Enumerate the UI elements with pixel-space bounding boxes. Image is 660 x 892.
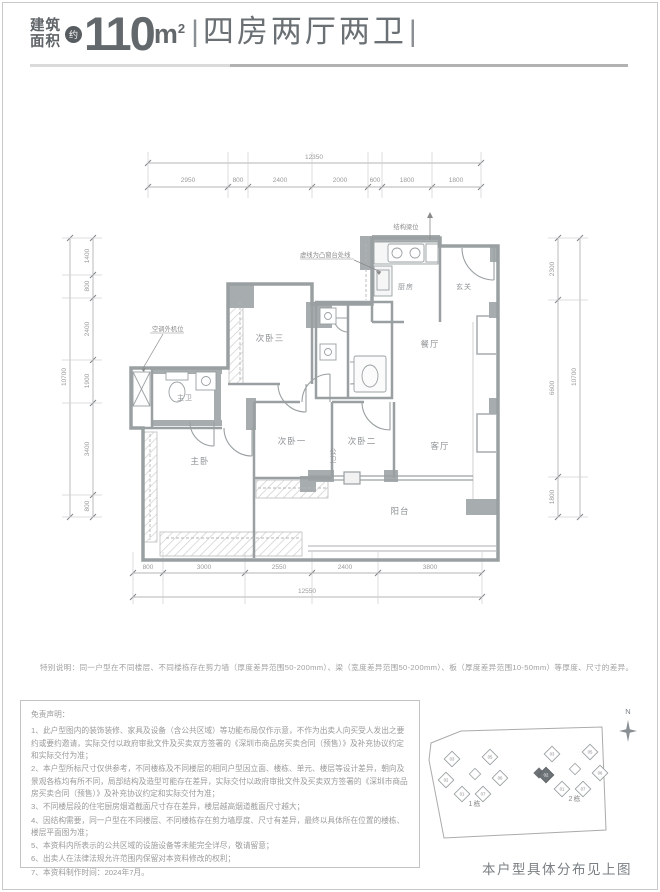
header: 建筑 面积 约 110 m2 | 四房两厅两卫 | bbox=[30, 12, 421, 56]
site-plan-caption: 本户型具体分布见上图 bbox=[467, 858, 647, 878]
pipe-left: | bbox=[191, 14, 199, 50]
dim-top-4: 600 bbox=[370, 177, 381, 184]
dim-left-5: 800 bbox=[84, 500, 91, 511]
layout-text: 四房两厅两卫 bbox=[203, 12, 407, 52]
room-kitchen: 厨房 bbox=[398, 282, 414, 291]
dim-left-1: 800 bbox=[84, 280, 91, 291]
dim-bottom-2: 2550 bbox=[272, 564, 287, 571]
header-divider-light bbox=[30, 64, 230, 67]
site-boundary bbox=[429, 727, 606, 838]
b1-unit-05: 05 bbox=[488, 755, 493, 760]
dim-bottom-0: 800 bbox=[143, 564, 154, 571]
b2-unit-03: 03 bbox=[550, 752, 555, 757]
b2-unit-02-highlighted: 02 bbox=[544, 773, 549, 778]
b1-unit-07: 07 bbox=[481, 792, 486, 797]
b1-unit-01: 01 bbox=[460, 792, 465, 797]
dim-left-2: 2400 bbox=[84, 321, 91, 336]
b2-unit-07: 07 bbox=[581, 787, 586, 792]
area-label-top: 建筑 bbox=[30, 18, 61, 34]
dim-top-2: 2400 bbox=[273, 177, 288, 184]
dim-left-3: 1900 bbox=[84, 373, 91, 388]
dim-top-3: 2000 bbox=[333, 177, 348, 184]
disclaimer-item: 7、本资料制作时间：2024年7月。 bbox=[31, 867, 409, 879]
b1-unit-03: 03 bbox=[450, 757, 455, 762]
corridor-zigzag bbox=[477, 316, 496, 452]
disclaimer-item: 2、本户型所标尺寸仅供参考，不同楼栋及不同楼层的相同户型因立面、楼栋、单元、楼层… bbox=[31, 763, 409, 800]
room-public-bath: 公卫 bbox=[327, 448, 337, 464]
dim-bottom-3: 2400 bbox=[338, 564, 353, 571]
approx-badge: 约 bbox=[65, 26, 82, 43]
room-foyer: 玄关 bbox=[456, 282, 472, 291]
room-living: 客厅 bbox=[430, 441, 449, 451]
room-balcony: 阳台 bbox=[390, 506, 409, 516]
north-star-icon bbox=[619, 720, 637, 742]
dim-top-6: 1800 bbox=[449, 177, 464, 184]
bay-window-label: 虚线为凸窗台处线 bbox=[300, 250, 351, 259]
room-master-bedroom: 主卧 bbox=[190, 456, 209, 466]
disclaimer-item: 6、出卖人在法律法规允许范围内保留对本资料修改的权利； bbox=[31, 853, 409, 865]
b1-unit-06: 06 bbox=[498, 776, 503, 781]
balcony-railing bbox=[308, 546, 496, 551]
special-note: 特别说明：同一户型在不同楼层、不同楼栋存在剪力墙（厚度差异范围50-200mm）… bbox=[40, 662, 640, 673]
building2-label: 2栋 bbox=[569, 794, 582, 803]
area-unit-base: m bbox=[154, 19, 178, 49]
area-label: 建筑 面积 bbox=[30, 18, 61, 50]
dim-bottom-total: 12550 bbox=[298, 588, 316, 595]
header-divider-dark bbox=[230, 64, 628, 67]
room-master-bath: 主卫 bbox=[177, 393, 193, 402]
disclaimer-title: 免责声明： bbox=[31, 709, 409, 721]
ac-unit-label: 空调外机位 bbox=[152, 324, 184, 333]
dim-top-0: 2950 bbox=[181, 177, 196, 184]
dim-right-0: 2300 bbox=[549, 261, 556, 276]
building1-label: 1栋 bbox=[469, 799, 482, 808]
area-unit-sup: 2 bbox=[178, 21, 185, 36]
room-dining: 餐厅 bbox=[420, 339, 439, 349]
dim-left-4: 3400 bbox=[84, 441, 91, 456]
pipe-right: | bbox=[409, 14, 417, 50]
b1-unit-02: 02 bbox=[444, 778, 449, 783]
dim-right-total: 10700 bbox=[571, 368, 578, 386]
dim-left-0: 1400 bbox=[84, 248, 91, 263]
dim-right-1: 6600 bbox=[549, 380, 556, 395]
dim-top-5: 1800 bbox=[400, 177, 415, 184]
area-value: 110 bbox=[84, 12, 154, 56]
dim-bottom-1: 3000 bbox=[197, 564, 212, 571]
dim-top-1: 800 bbox=[233, 177, 244, 184]
disclaimer-item: 3、不同楼层段的住宅厨房烟道截面尺寸存在差异，楼层越高烟道截面尺寸越大； bbox=[31, 801, 409, 813]
dim-bottom-4: 3800 bbox=[423, 564, 438, 571]
site-plan: 03 05 02 06 01 07 1栋 03 05 02 06 01 07 2… bbox=[428, 698, 658, 858]
b2-unit-01: 01 bbox=[560, 787, 565, 792]
dim-top-total: 12350 bbox=[305, 154, 323, 161]
dim-left-total: 10700 bbox=[61, 368, 68, 386]
north-label: N bbox=[625, 707, 630, 716]
disclaimer-item: 1、此户型图内的装饰装修、家具及设备（含公共区域）等功能布局仅作示意，不作为出卖… bbox=[31, 725, 409, 762]
area-unit: m2 bbox=[154, 14, 185, 49]
room-bedroom3: 次卧三 bbox=[256, 333, 285, 343]
room-bedroom1: 次卧一 bbox=[278, 436, 307, 446]
beam-label: 结构梁位 bbox=[393, 222, 419, 231]
floor-plan: 12350 2950 800 2400 2000 600 1800 1800 1… bbox=[0, 128, 660, 638]
disclaimer-item: 4、因结构需要，同一户型在不同楼层、不同楼栋存在剪力墙厚度、尺寸有差异，最终以具… bbox=[31, 815, 409, 840]
room-bedroom2: 次卧二 bbox=[348, 436, 377, 446]
disclaimer-item: 5、本资料内所表示的公共区域的设施设备等未能完全详尽，敬请留意； bbox=[31, 840, 409, 852]
area-label-bottom: 面积 bbox=[30, 34, 61, 50]
disclaimer-box: 免责声明： 1、此户型图内的装饰装修、家具及设备（含公共区域）等功能布局仅作示意… bbox=[20, 700, 420, 868]
b2-unit-05: 05 bbox=[588, 750, 593, 755]
dim-right-2: 1800 bbox=[549, 489, 556, 504]
b2-unit-06: 06 bbox=[598, 771, 603, 776]
